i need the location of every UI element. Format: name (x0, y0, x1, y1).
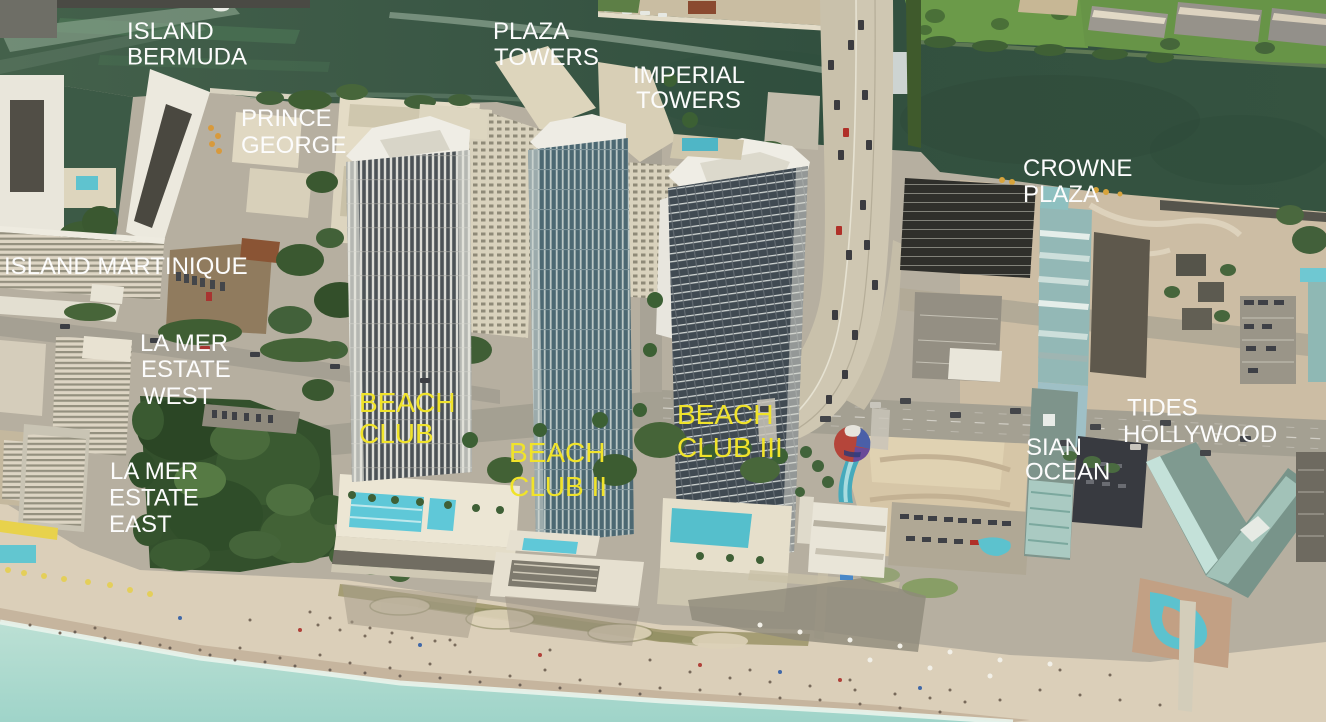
svg-text:ESTATE: ESTATE (141, 356, 231, 383)
svg-text:LA MER: LA MER (140, 330, 228, 357)
svg-text:BEACH: BEACH (509, 437, 605, 468)
svg-text:WEST: WEST (143, 383, 213, 410)
svg-text:CLUB II: CLUB II (509, 471, 607, 502)
svg-text:BERMUDA: BERMUDA (127, 44, 247, 71)
svg-text:HOLLYWOOD: HOLLYWOOD (1123, 421, 1277, 448)
svg-text:CLUB III: CLUB III (677, 432, 783, 463)
svg-text:CROWNE: CROWNE (1023, 155, 1132, 182)
svg-text:ESTATE: ESTATE (109, 485, 199, 512)
svg-text:IMPERIAL: IMPERIAL (633, 62, 745, 89)
svg-text:PLAZA: PLAZA (1023, 181, 1099, 208)
svg-text:PRINCE: PRINCE (241, 105, 332, 132)
svg-text:LA MER: LA MER (110, 458, 198, 485)
svg-text:TIDES: TIDES (1127, 395, 1198, 422)
svg-text:TOWERS: TOWERS (636, 87, 741, 114)
svg-text:ISLAND MARTINIQUE: ISLAND MARTINIQUE (4, 253, 248, 280)
svg-text:CLUB: CLUB (359, 418, 434, 449)
svg-text:PLAZA: PLAZA (493, 18, 569, 45)
svg-text:TOWERS: TOWERS (494, 44, 599, 71)
svg-text:GEORGE: GEORGE (241, 132, 346, 159)
svg-text:OCEAN: OCEAN (1025, 459, 1110, 486)
svg-text:EAST: EAST (109, 511, 172, 538)
svg-text:ISLAND: ISLAND (127, 18, 214, 45)
svg-text:SIAN: SIAN (1026, 434, 1082, 461)
svg-text:BEACH: BEACH (677, 399, 773, 430)
svg-text:BEACH: BEACH (359, 387, 455, 418)
